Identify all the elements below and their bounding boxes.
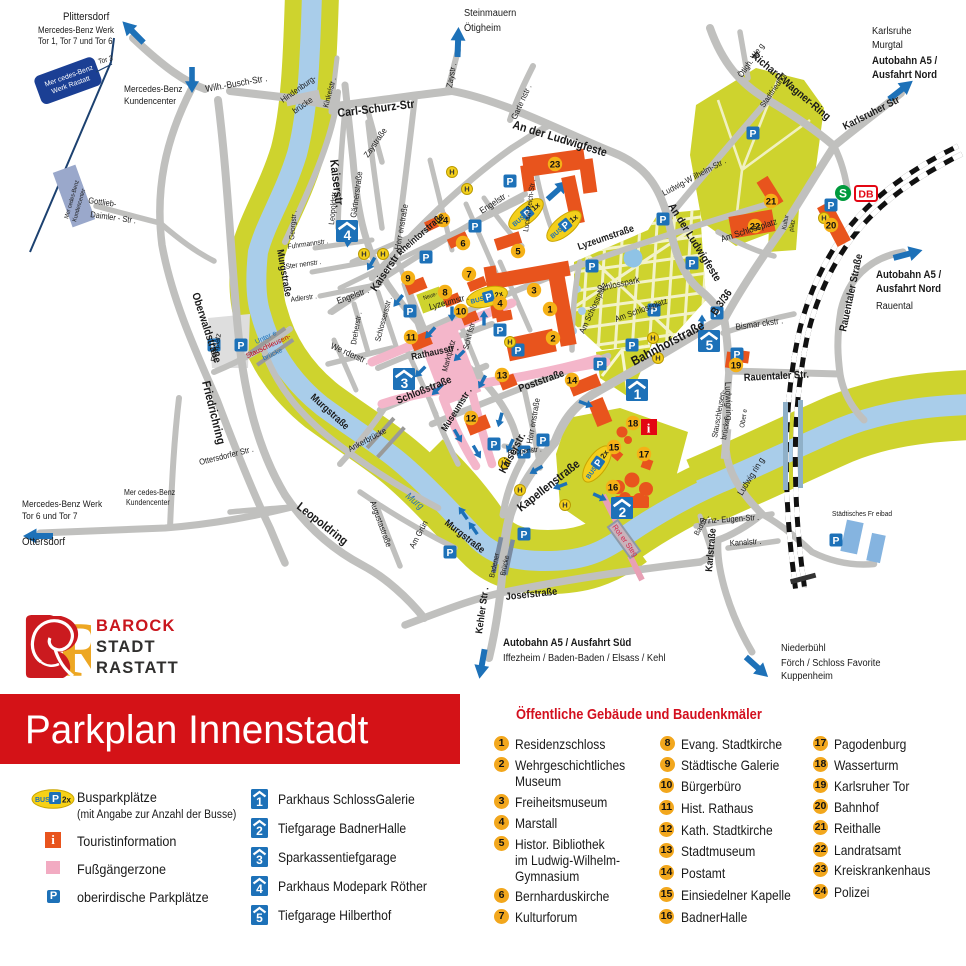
svg-text:6: 6	[460, 238, 465, 249]
svg-text:5: 5	[706, 338, 714, 353]
svg-text:Kehler Str .: Kehler Str .	[473, 586, 491, 634]
svg-text:Iffezheim / Baden-Baden / Elsa: Iffezheim / Baden-Baden / Elsass / Kehl	[503, 653, 665, 665]
svg-text:Georgstr .: Georgstr .	[289, 210, 299, 240]
svg-text:P: P	[689, 259, 696, 270]
svg-text:H: H	[464, 185, 469, 194]
svg-text:P: P	[750, 129, 757, 140]
svg-text:19: 19	[731, 360, 742, 371]
svg-text:15: 15	[609, 442, 620, 453]
svg-text:2: 2	[550, 333, 555, 344]
svg-text:P: P	[597, 360, 604, 371]
svg-text:P: P	[497, 326, 504, 337]
svg-text:P: P	[447, 548, 454, 559]
svg-text:P: P	[515, 346, 522, 357]
svg-text:H: H	[380, 250, 385, 259]
svg-text:Bismar ckstr .: Bismar ckstr .	[735, 315, 784, 332]
svg-text:Ötigheim: Ötigheim	[464, 23, 501, 35]
svg-text:H: H	[562, 501, 567, 510]
svg-text:Kundencenter: Kundencenter	[124, 96, 176, 107]
svg-text:Mercedes-Benz: Mercedes-Benz	[124, 84, 183, 95]
svg-text:H: H	[361, 250, 366, 259]
svg-text:4: 4	[344, 228, 352, 243]
svg-text:Karlsruher Str: Karlsruher Str	[841, 94, 902, 133]
svg-text:3: 3	[401, 376, 409, 391]
svg-text:P: P	[507, 177, 514, 188]
svg-text:P: P	[52, 793, 59, 805]
svg-text:16: 16	[608, 482, 619, 493]
svg-text:P: P	[521, 530, 528, 541]
svg-text:2: 2	[619, 505, 627, 520]
svg-text:Rauentaler Straße: Rauentaler Straße	[838, 253, 866, 333]
svg-text:Gottlieb-: Gottlieb-	[88, 196, 118, 209]
svg-text:12: 12	[466, 413, 477, 424]
svg-text:Ober e: Ober e	[739, 408, 750, 428]
svg-text:S: S	[839, 187, 847, 201]
svg-text:H: H	[517, 486, 522, 495]
svg-text:13: 13	[497, 370, 508, 381]
svg-text:11: 11	[406, 332, 417, 343]
svg-text:P: P	[629, 341, 636, 352]
svg-text:1: 1	[634, 387, 642, 402]
svg-text:Tor 6 und Tor 7: Tor 6 und Tor 7	[22, 511, 78, 522]
svg-text:7: 7	[466, 269, 471, 280]
svg-text:Kuppenheim: Kuppenheim	[781, 671, 833, 683]
svg-text:P: P	[589, 262, 596, 273]
svg-text:Karlstraße: Karlstraße	[702, 528, 717, 572]
svg-text:H: H	[507, 338, 512, 347]
svg-text:Autobahn A5 / Ausfahrt Süd: Autobahn A5 / Ausfahrt Süd	[503, 638, 631, 650]
svg-text:14: 14	[567, 375, 578, 386]
svg-text:DB: DB	[858, 189, 874, 201]
svg-text:Tor 1, Tor 7 und Tor 6: Tor 1, Tor 7 und Tor 6	[38, 36, 113, 47]
svg-text:P: P	[660, 215, 667, 226]
svg-text:P: P	[472, 222, 479, 233]
svg-text:Ausfahrt Nord: Ausfahrt Nord	[876, 284, 941, 296]
svg-text:P: P	[491, 440, 498, 451]
svg-text:9: 9	[405, 273, 410, 284]
svg-text:1: 1	[547, 304, 553, 315]
svg-text:Plittersdorf: Plittersdorf	[63, 12, 109, 24]
svg-text:Städtisches Fr eibad: Städtisches Fr eibad	[832, 511, 892, 518]
svg-text:Zaystr .: Zaystr .	[445, 62, 459, 88]
svg-text:18: 18	[628, 418, 639, 429]
svg-text:Murgtal: Murgtal	[872, 40, 903, 52]
svg-text:Autobahn A5 /: Autobahn A5 /	[876, 270, 941, 282]
svg-text:Ottersdorfer Str .: Ottersdorfer Str .	[198, 444, 254, 467]
svg-text:Förch / Schloss Favorite: Förch / Schloss Favorite	[781, 658, 881, 670]
svg-text:5: 5	[515, 246, 521, 257]
svg-text:Mer cedes-Benz: Mer cedes-Benz	[124, 488, 175, 498]
svg-text:23: 23	[550, 159, 561, 170]
svg-text:10: 10	[456, 306, 467, 317]
svg-text:2x: 2x	[62, 796, 71, 805]
svg-text:Ottersdorf: Ottersdorf	[22, 537, 65, 549]
svg-text:3: 3	[531, 285, 536, 296]
svg-text:Steinmauern: Steinmauern	[464, 8, 516, 20]
svg-text:BUS: BUS	[35, 797, 50, 804]
svg-text:Mercedes-Benz Werk: Mercedes-Benz Werk	[22, 499, 103, 510]
svg-text:P: P	[407, 307, 414, 318]
svg-text:17: 17	[639, 449, 650, 460]
svg-text:21: 21	[766, 196, 777, 207]
svg-text:Autobahn A5 /: Autobahn A5 /	[872, 56, 937, 68]
svg-text:20: 20	[826, 220, 837, 231]
svg-text:Rauental: Rauental	[876, 301, 913, 313]
svg-text:Ausfahrt Nord: Ausfahrt Nord	[872, 70, 937, 82]
svg-text:Kundencenter: Kundencenter	[126, 498, 170, 508]
svg-text:P: P	[828, 201, 835, 212]
svg-text:H: H	[449, 168, 454, 177]
svg-text:P: P	[833, 536, 840, 547]
svg-text:P: P	[238, 341, 245, 352]
svg-text:i: i	[647, 421, 651, 436]
svg-text:Mercedes-Benz Werk: Mercedes-Benz Werk	[38, 25, 115, 36]
svg-text:4: 4	[497, 298, 503, 309]
svg-text:Daimler - Str .: Daimler - Str .	[90, 210, 137, 226]
svg-text:P: P	[423, 253, 430, 264]
svg-text:Karlsruhe: Karlsruhe	[872, 26, 912, 38]
svg-text:Niederbühl: Niederbühl	[781, 643, 826, 655]
